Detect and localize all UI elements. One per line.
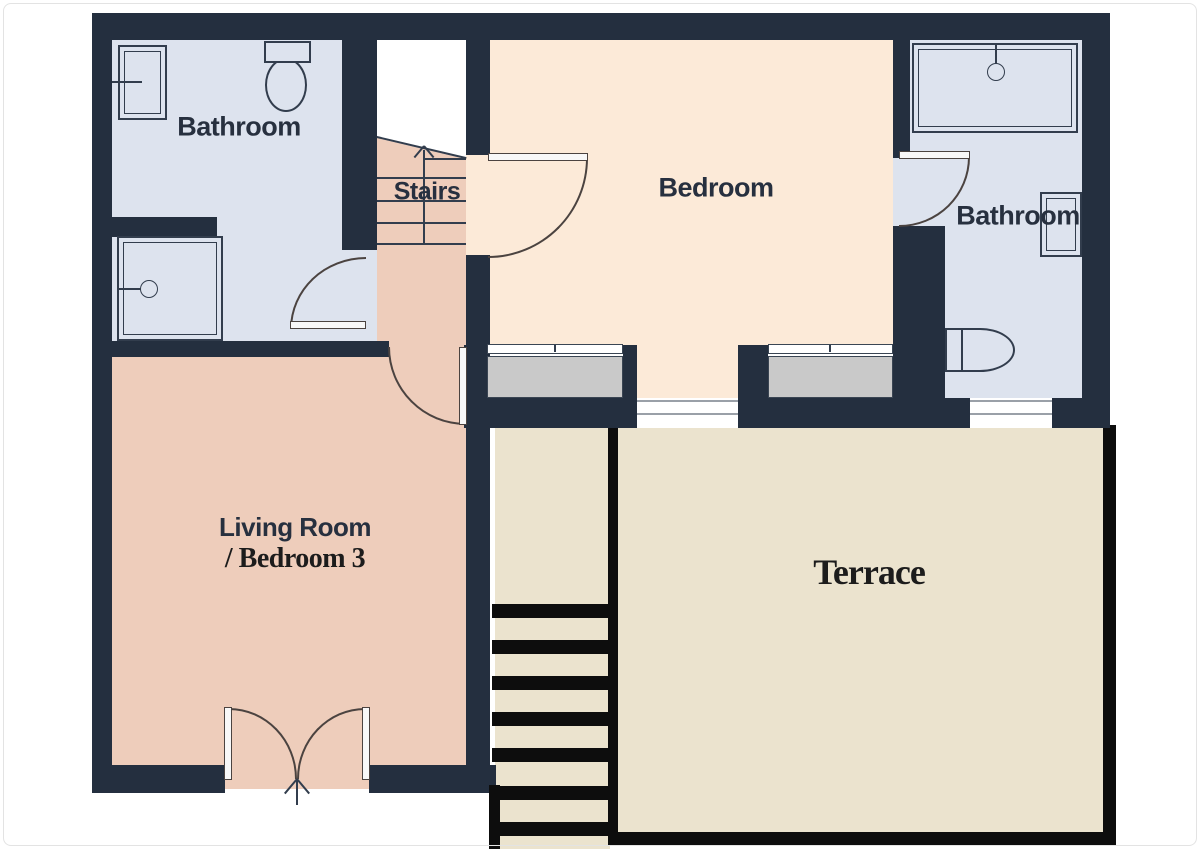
page-border xyxy=(3,3,1197,846)
floorplan-page: Bathroom Stairs Bedroom Bathroom Living … xyxy=(0,0,1200,849)
